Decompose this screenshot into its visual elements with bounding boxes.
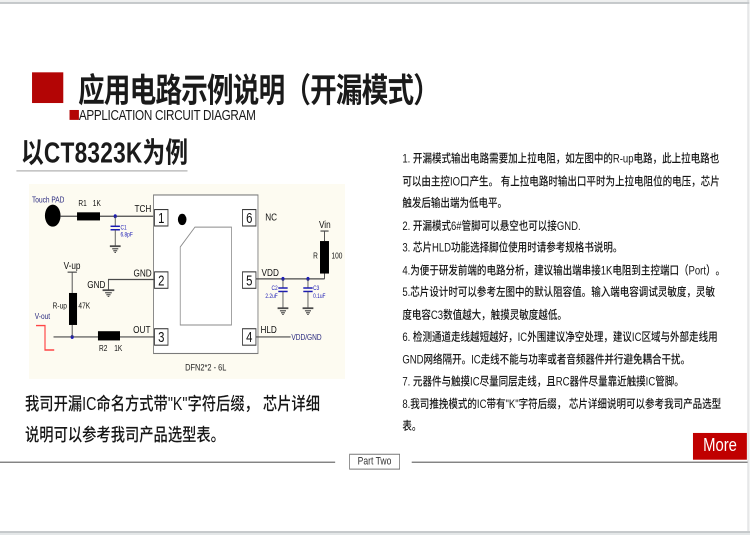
svg-text:DFN2*2 - 6L: DFN2*2 - 6L [185, 361, 226, 372]
svg-text:5: 5 [246, 272, 252, 289]
svg-text:VDD/GND: VDD/GND [291, 332, 322, 342]
svg-text:C2: C2 [272, 285, 278, 292]
svg-text:6.8pF: 6.8pF [120, 232, 133, 239]
svg-text:3: 3 [158, 329, 164, 346]
svg-text:HLD: HLD [260, 324, 277, 335]
svg-text:R: R [313, 251, 318, 261]
svg-text:C1: C1 [120, 225, 126, 232]
svg-text:47K: 47K [78, 301, 90, 311]
svg-text:NC: NC [265, 212, 277, 223]
svg-text:GND: GND [87, 279, 105, 290]
svg-text:R2: R2 [99, 343, 107, 353]
svg-text:OUT: OUT [133, 324, 151, 335]
svg-text:TCH: TCH [134, 203, 151, 214]
svg-text:1: 1 [158, 210, 164, 227]
svg-text:0.1uF: 0.1uF [313, 294, 326, 301]
svg-text:R-up: R-up [53, 301, 67, 311]
svg-text:V-up: V-up [64, 260, 81, 271]
svg-text:R1: R1 [78, 198, 86, 208]
svg-text:Vin: Vin [319, 219, 331, 230]
svg-text:1K: 1K [93, 198, 101, 208]
svg-text:2: 2 [158, 272, 164, 289]
svg-text:6: 6 [246, 210, 252, 227]
svg-text:100: 100 [331, 251, 342, 261]
svg-text:2.2uF: 2.2uF [265, 294, 278, 301]
svg-text:V-out: V-out [35, 311, 51, 321]
svg-text:VDD: VDD [262, 267, 280, 278]
svg-text:1K: 1K [114, 343, 122, 353]
svg-text:Touch PAD: Touch PAD [32, 195, 65, 205]
svg-text:GND: GND [133, 268, 151, 279]
svg-text:4: 4 [246, 329, 252, 346]
svg-text:C3: C3 [313, 285, 319, 292]
